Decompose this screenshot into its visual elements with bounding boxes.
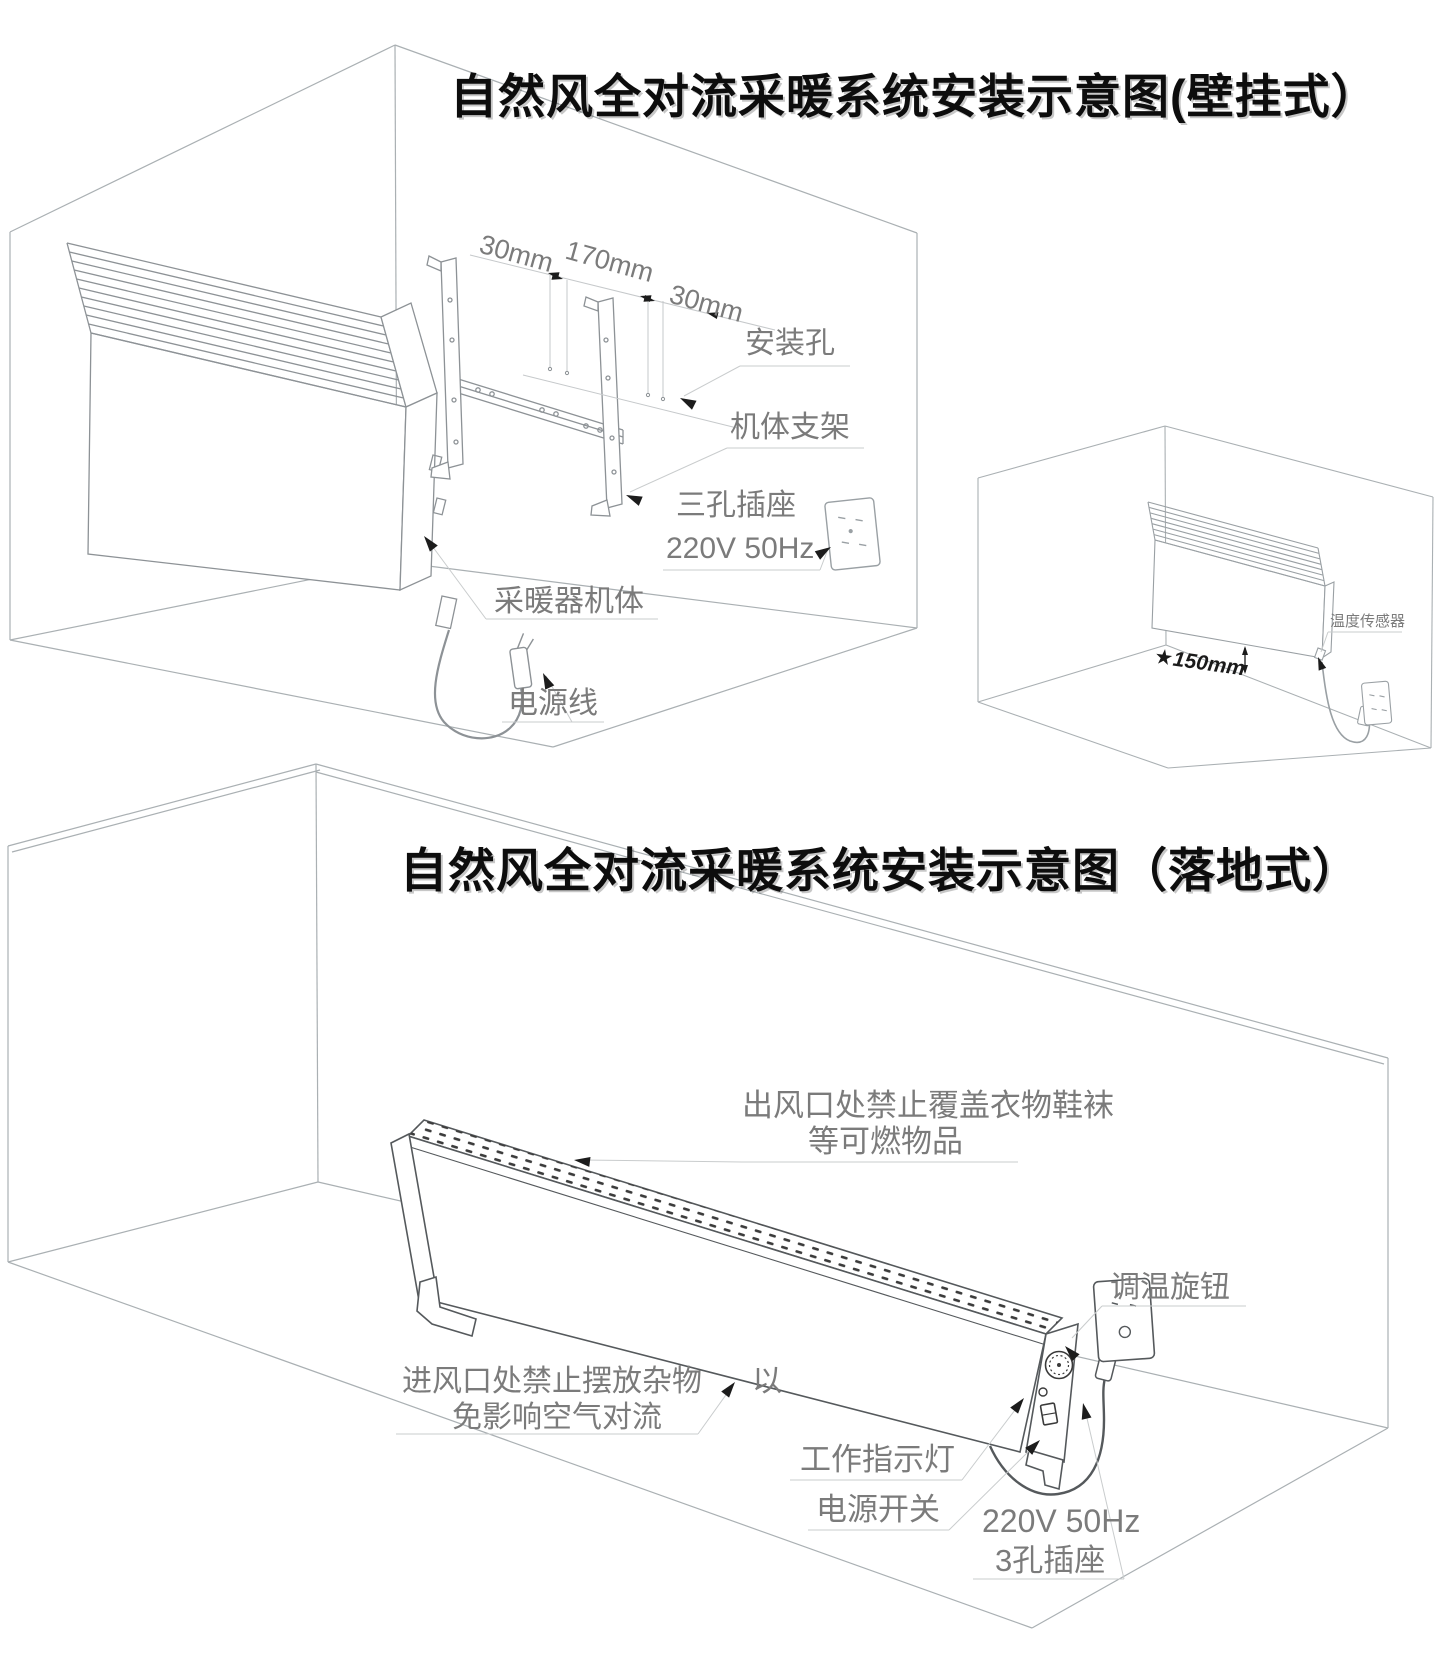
label-inlet-warning-suffix: 以 xyxy=(752,1366,782,1398)
label-socket-power-top: 220V 50Hz xyxy=(666,533,814,565)
label-inlet-warning-line1: 进风口处禁止摆放杂物 xyxy=(402,1366,702,1398)
label-outlet-warning-line1: 出风口处禁止覆盖衣物鞋袜 xyxy=(742,1090,1114,1123)
label-heater-body: 采暖器机体 xyxy=(494,586,644,618)
label-power-switch: 电源开关 xyxy=(816,1494,940,1527)
title-wall-mounted: 自然风全对流采暖系统安装示意图(壁挂式） xyxy=(450,58,1379,127)
label-indicator: 工作指示灯 xyxy=(800,1444,955,1477)
installation-diagram-page: 自然风全对流采暖系统安装示意图(壁挂式） 自然风全对流采暖系统安装示意图（落地式… xyxy=(0,0,1440,1672)
wall-socket xyxy=(825,498,881,571)
mounting-bracket xyxy=(427,256,623,516)
label-power-cord: 电源线 xyxy=(508,688,598,720)
wall-heater-body xyxy=(67,243,457,628)
title-floor-standing: 自然风全对流采暖系统安装示意图（落地式） xyxy=(400,832,1360,901)
label-socket-type-top: 三孔插座 xyxy=(676,490,796,522)
label-socket-power-bottom: 220V 50Hz xyxy=(982,1505,1140,1539)
label-temp-sensor: 温度传感器 xyxy=(1330,614,1405,630)
label-outlet-warning-line2: 等可燃物品 xyxy=(808,1126,963,1159)
label-socket-type-bottom: 3孔插座 xyxy=(995,1545,1105,1578)
label-mounting-hole: 安装孔 xyxy=(745,328,835,360)
label-bracket: 机体支架 xyxy=(730,412,850,444)
dimension-guides xyxy=(470,255,775,428)
indicator-light-icon xyxy=(1039,1388,1047,1396)
label-knob: 调温旋钮 xyxy=(1110,1272,1230,1304)
power-switch-icon xyxy=(1040,1403,1057,1425)
label-inlet-warning-line2: 免影响空气对流 xyxy=(452,1402,662,1434)
